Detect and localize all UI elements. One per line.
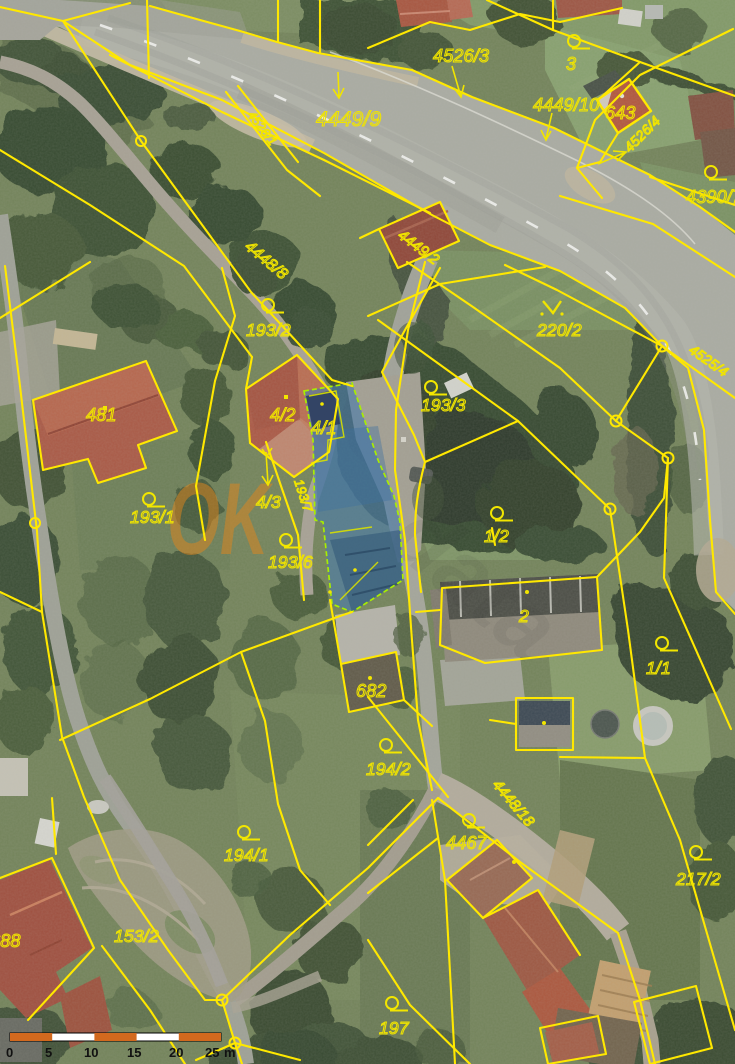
svg-text:10: 10	[84, 1045, 98, 1060]
svg-text:481: 481	[86, 405, 117, 425]
svg-text:194/1: 194/1	[224, 845, 269, 865]
svg-text:4/2: 4/2	[270, 405, 296, 425]
svg-text:OK: OK	[167, 462, 273, 576]
svg-text:193/1: 193/1	[130, 507, 175, 527]
svg-text:4467: 4467	[446, 833, 488, 853]
svg-text:217/2: 217/2	[675, 869, 721, 889]
svg-text:193/3: 193/3	[421, 395, 466, 415]
svg-text:15: 15	[127, 1045, 141, 1060]
svg-text:688: 688	[0, 931, 21, 951]
svg-text:1/2: 1/2	[484, 526, 509, 546]
svg-text:193/6: 193/6	[268, 552, 313, 572]
svg-text:220/2: 220/2	[536, 320, 582, 340]
svg-text:25: 25	[205, 1045, 219, 1060]
svg-text:5: 5	[45, 1045, 52, 1060]
svg-text:3: 3	[566, 54, 576, 74]
svg-text:0: 0	[6, 1045, 13, 1060]
svg-text:197: 197	[379, 1018, 410, 1038]
svg-text:153/2: 153/2	[114, 926, 159, 946]
svg-text:4449/10: 4449/10	[533, 95, 599, 115]
svg-text:682: 682	[356, 681, 387, 701]
svg-text:4390/7: 4390/7	[686, 187, 735, 207]
svg-text:20: 20	[169, 1045, 183, 1060]
svg-text:m: m	[224, 1045, 236, 1060]
svg-text:193/2: 193/2	[246, 320, 291, 340]
svg-text:4449/9: 4449/9	[316, 108, 382, 131]
svg-text:194/2: 194/2	[366, 759, 411, 779]
svg-text:4526/3: 4526/3	[433, 46, 489, 66]
svg-text:4/3: 4/3	[256, 492, 281, 512]
svg-text:1/1: 1/1	[646, 658, 671, 678]
svg-text:2: 2	[518, 606, 529, 626]
svg-text:4/1: 4/1	[311, 418, 337, 438]
svg-text:643: 643	[605, 103, 636, 123]
